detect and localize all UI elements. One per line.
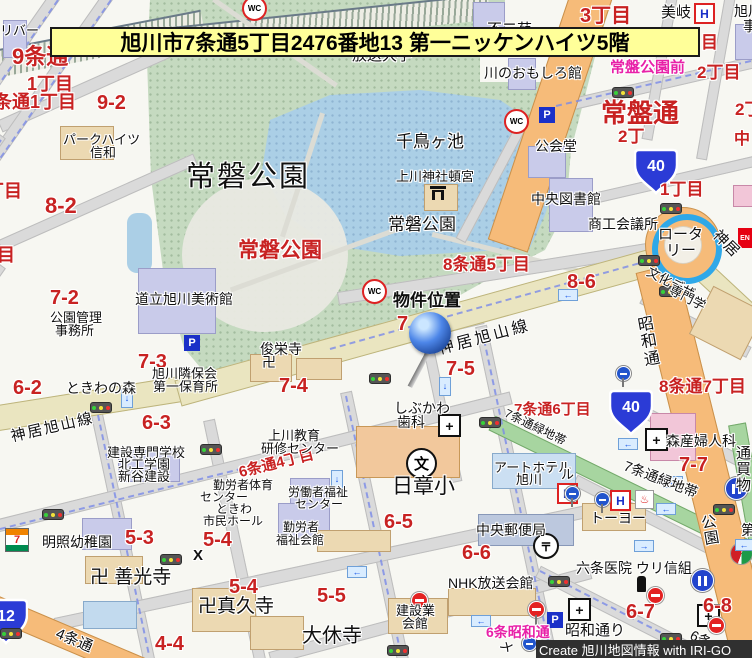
address-banner-text: 旭川市7条通5丁目2476番地13 第一ニッケンハイツ5階 [121, 27, 630, 57]
property-location-label: 物件位置 [393, 292, 461, 309]
pond-arm [127, 213, 152, 273]
map-label: 第一保育所 [153, 380, 218, 393]
park-name: 常磐公園 [238, 240, 322, 261]
map-label: 市民ホール [203, 515, 263, 527]
map-label: NHK放送会館 [448, 576, 534, 590]
traffic-light-icon [660, 203, 682, 214]
block-number: 6-8 [703, 596, 732, 616]
block-number: 5-4 [203, 530, 232, 550]
rotary-label: リー [666, 243, 696, 258]
map-label: 2丁目 [697, 64, 740, 81]
map-label: トーヨー [590, 511, 646, 525]
map-label: 目 [0, 246, 15, 264]
rotary-label: ロータ [658, 227, 703, 242]
street-name: 8条通7丁目 [659, 378, 746, 395]
map-label: 中 [734, 132, 750, 148]
block-number: 9-2 [97, 93, 126, 113]
block-number: 4-4 [155, 634, 184, 654]
svg-text:40: 40 [647, 158, 665, 175]
building [448, 588, 536, 616]
block-number: 7-4 [279, 376, 308, 396]
block-number: 5-4 [229, 577, 258, 597]
wc-icon: WC [504, 109, 529, 134]
street-name: 通買物 [736, 446, 752, 495]
map-label: 美岐 [661, 5, 691, 20]
map-label: 福祉会館 [276, 534, 324, 546]
hospital-icon: + [438, 414, 461, 437]
block-number: 5-5 [317, 586, 346, 606]
block-number: 6-6 [462, 543, 491, 563]
map-label: ル [561, 468, 574, 481]
traffic-light-icon [42, 509, 64, 520]
svg-text:12: 12 [0, 608, 15, 625]
sign-pole [571, 498, 573, 507]
property-pin[interactable] [409, 312, 451, 354]
traffic-light-icon [612, 87, 634, 98]
watermark-text: Create 旭川地図情報 with IRI-GO [539, 640, 731, 658]
onsen-icon: ♨ [635, 490, 654, 509]
block-number: 8-2 [45, 195, 77, 217]
map-label: 新谷建設 [118, 470, 170, 483]
temple-name: 卍 善光寺 [90, 568, 171, 587]
street-name: 常盤通 [601, 100, 679, 126]
bus-stop-label: 常盤公園前 [610, 60, 685, 75]
map-label: 公会堂 [535, 139, 577, 153]
building [317, 530, 391, 552]
hotel-icon: H [694, 3, 715, 24]
map-label: センター [295, 498, 343, 510]
map-label: リバー [0, 24, 39, 37]
map-label: 川のおもしろ館 [484, 66, 582, 80]
pedestrian-crossing-icon [691, 569, 714, 592]
map-label: 3丁目 [580, 6, 631, 26]
street-name: 昭和通り [565, 623, 625, 638]
traffic-light-icon [369, 373, 391, 384]
svg-text:40: 40 [622, 399, 640, 416]
map-label: 条通1丁目 [0, 93, 76, 111]
map-label: 旭川 [516, 473, 542, 486]
block-number: 7-2 [50, 288, 79, 308]
map-label: 明照幼稚園 [42, 535, 112, 549]
traffic-light-icon [479, 417, 501, 428]
map-label: 商工会議所 [588, 217, 658, 231]
map-label: 旭川 [734, 4, 752, 18]
map-label: 道立旭川美術館 [135, 292, 233, 306]
block-number: 6-7 [626, 602, 655, 622]
block-number: 8-6 [567, 272, 596, 292]
police-mark: X [193, 548, 203, 563]
sign-pole [622, 378, 624, 387]
map-label: 1丁目 [660, 181, 703, 198]
map-label: 歯科 [397, 415, 425, 429]
one-way-arrow-icon: ← [735, 539, 752, 551]
map-label: しぶかわ [394, 401, 450, 415]
traffic-light-icon [387, 645, 409, 656]
map-label: 勤労者 [283, 521, 319, 533]
map-label: 2丁 [618, 128, 644, 145]
hospital-icon: + [568, 598, 591, 621]
parking-icon: P [184, 335, 200, 351]
hospital-icon: + [645, 428, 668, 451]
traffic-light-icon [0, 628, 22, 639]
map-label: 研修センター [261, 442, 339, 455]
map-label: 目 [701, 34, 718, 51]
street-name: 8条通5丁目 [443, 256, 530, 273]
block-number: 7-7 [679, 455, 708, 475]
map-canvas[interactable]: 40 40 12 WC WC WC P P P H H H ♨ + + + + … [0, 0, 752, 658]
school-name: 日章小 [392, 476, 455, 497]
traffic-light-icon [160, 554, 182, 565]
wc-icon: WC [362, 279, 387, 304]
temple-mark: 卍 [262, 355, 276, 369]
map-label: 事務所 [55, 324, 94, 337]
traffic-light-icon [548, 576, 570, 587]
map-label: ときわの森 [66, 381, 136, 395]
torii-icon [430, 186, 446, 200]
one-way-arrow-icon: ← [656, 503, 676, 515]
block-number: 6-3 [142, 413, 171, 433]
hotel-icon: H [610, 490, 631, 511]
block-number: 6-5 [384, 512, 413, 532]
map-label: 2丁目 [735, 101, 752, 118]
map-label: 1丁目 [27, 75, 73, 93]
pond-name: 千鳥ヶ池 [396, 133, 464, 150]
street[interactable] [0, 262, 6, 410]
map-label: 中央郵便局 [476, 523, 546, 537]
map-label: 中央図書館 [531, 192, 601, 206]
shrine-name: 上川神社頓宮 [396, 170, 474, 183]
traffic-light-icon [638, 255, 660, 266]
monument-icon [637, 576, 646, 592]
watermark-bar: Create 旭川地図情報 with IRI-GO [536, 640, 752, 658]
map-label: メ [497, 637, 515, 655]
block-number: 7-5 [446, 359, 475, 379]
map-label: 会館 [402, 617, 428, 630]
traffic-light-icon [200, 444, 222, 455]
map-label: 森産婦人科 [666, 434, 736, 448]
one-way-arrow-icon: → [634, 540, 654, 552]
block-number: 5-3 [125, 528, 154, 548]
one-way-arrow-icon: ← [347, 566, 367, 578]
address-banner: 旭川市7条通5丁目2476番地13 第一ニッケンハイツ5階 [50, 27, 700, 57]
no-entry-sign-icon [708, 617, 725, 634]
map-label: 丁目 [0, 182, 22, 200]
park-name: 常磐公園 [388, 216, 456, 233]
temple-name: 卍真久寺 [198, 597, 274, 616]
building [733, 185, 752, 207]
map-label: 信和 [90, 146, 116, 159]
block-number: 6-2 [13, 378, 42, 398]
one-way-arrow-icon: ← [618, 438, 638, 450]
temple-name: 大休寺 [302, 626, 362, 646]
map-label: 事 [743, 19, 752, 33]
building [83, 601, 137, 629]
intersection-name: 6条昭和通 [486, 625, 550, 639]
traffic-light-icon [90, 402, 112, 413]
parking-icon: P [539, 107, 555, 123]
building [250, 616, 304, 650]
seven-eleven-icon: 7 [5, 528, 29, 552]
map-label: 六条医院 ウリ信組 [576, 561, 692, 575]
map-label: 第 [741, 523, 752, 537]
park-name: 常磐公園 [186, 163, 310, 192]
block-number: 7 [397, 314, 408, 334]
